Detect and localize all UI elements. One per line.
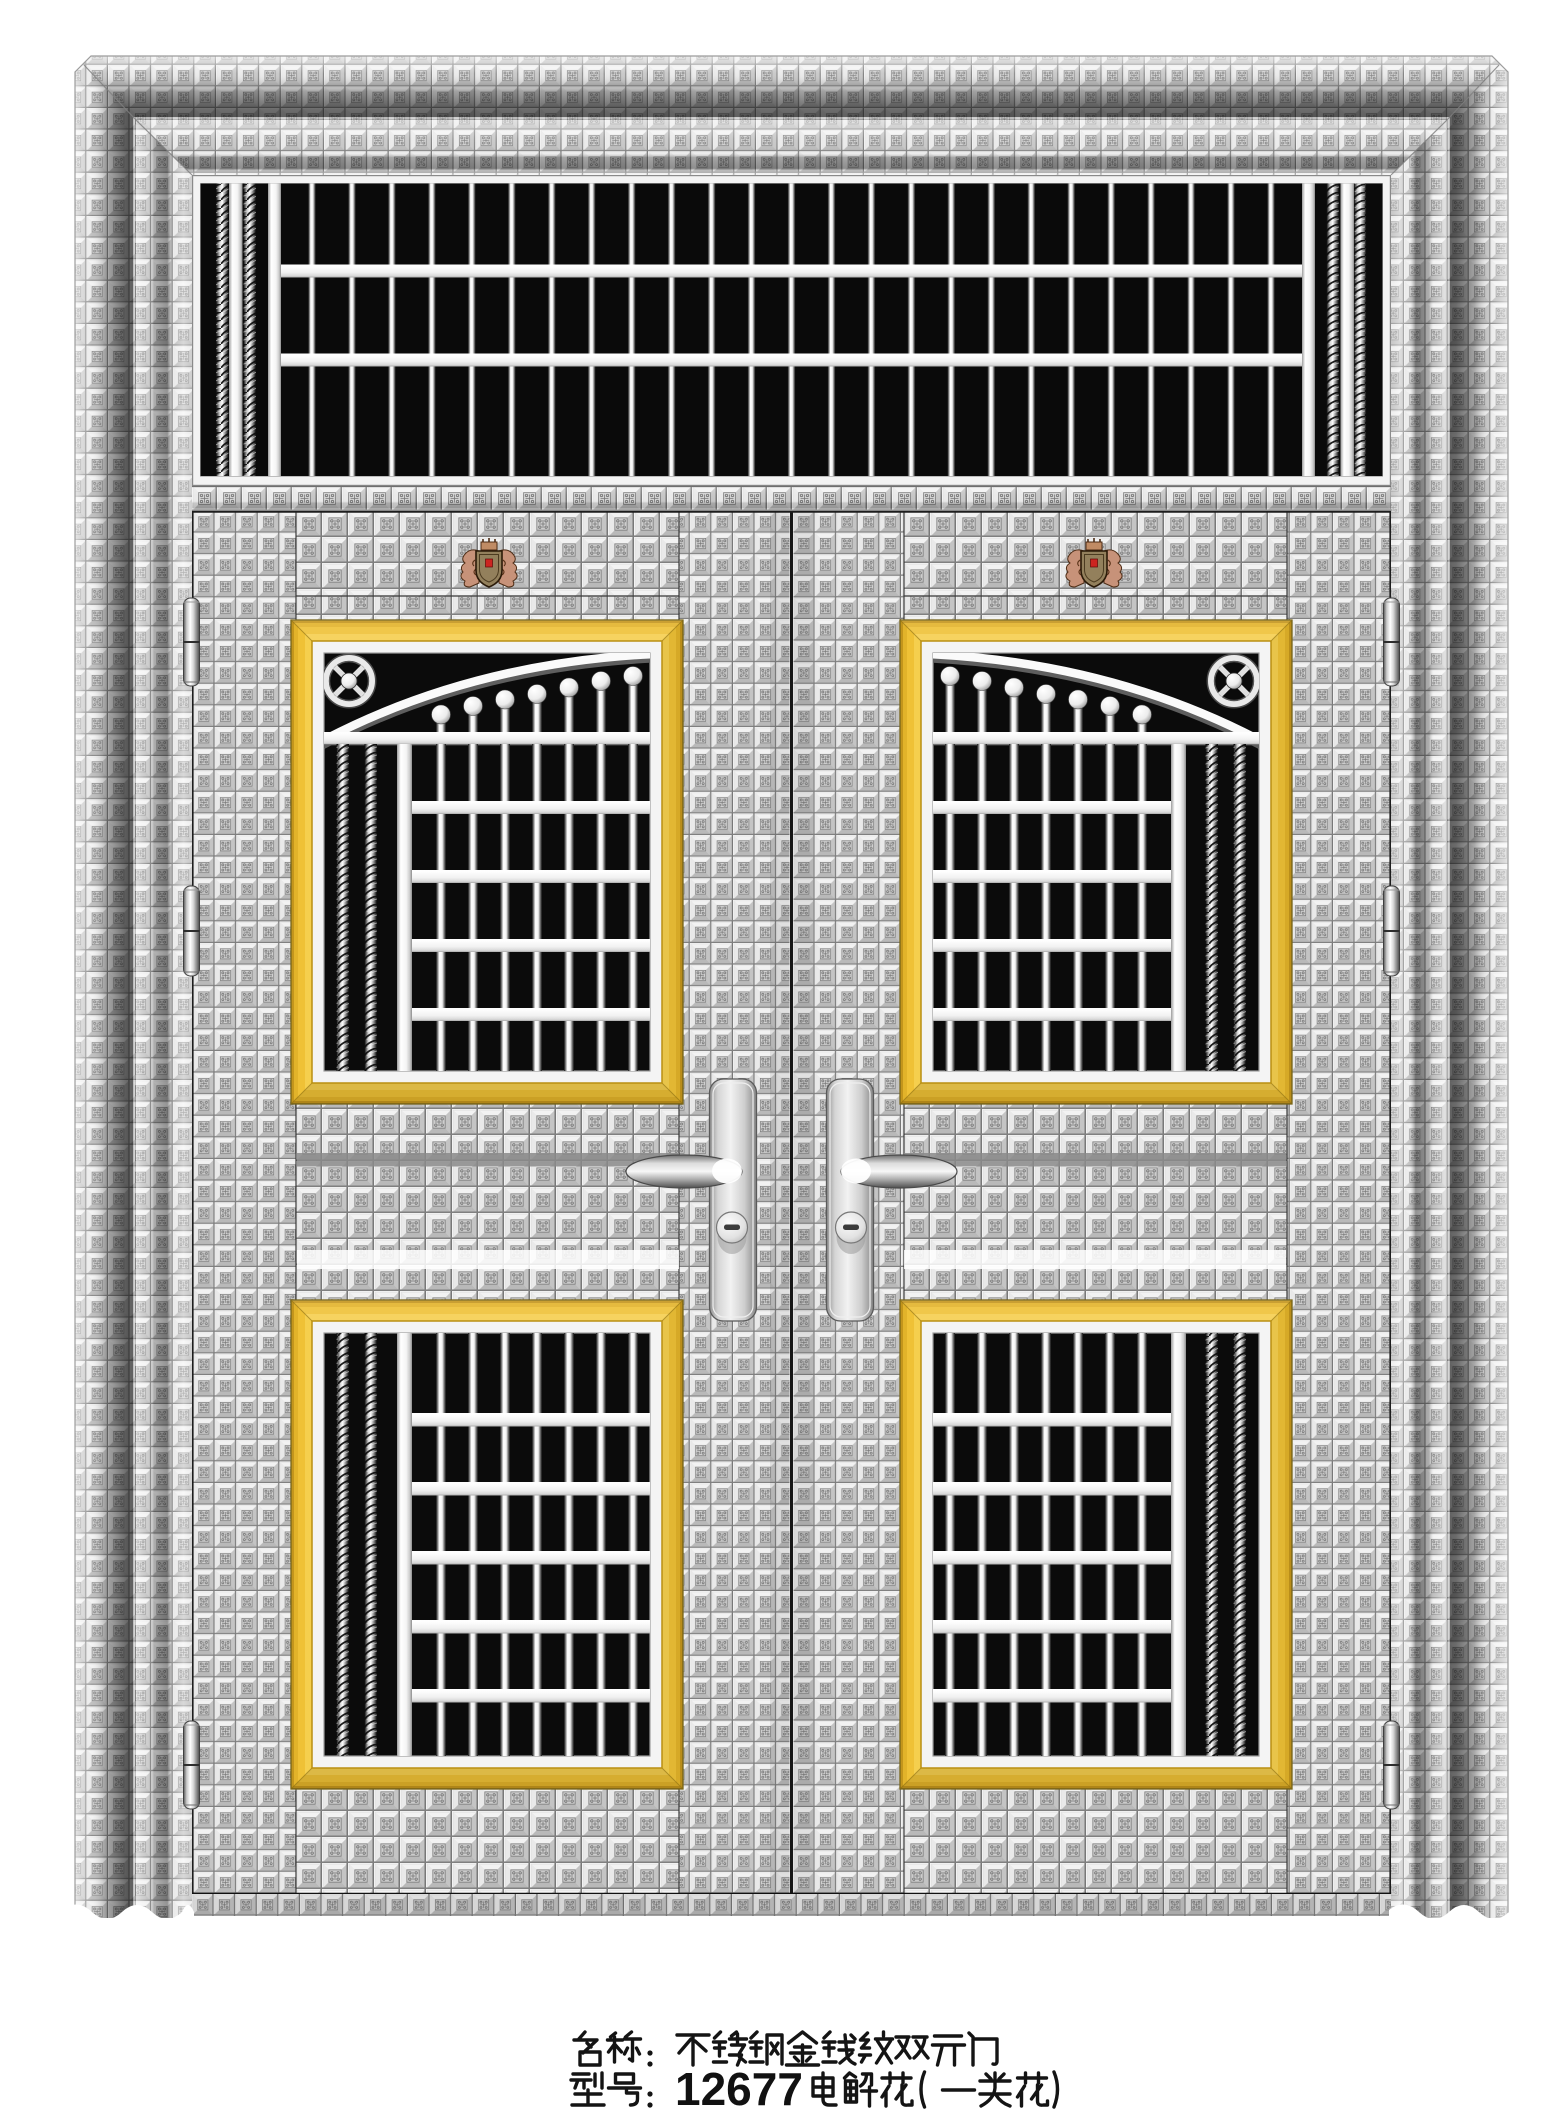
svg-text:12677: 12677: [675, 2063, 803, 2110]
